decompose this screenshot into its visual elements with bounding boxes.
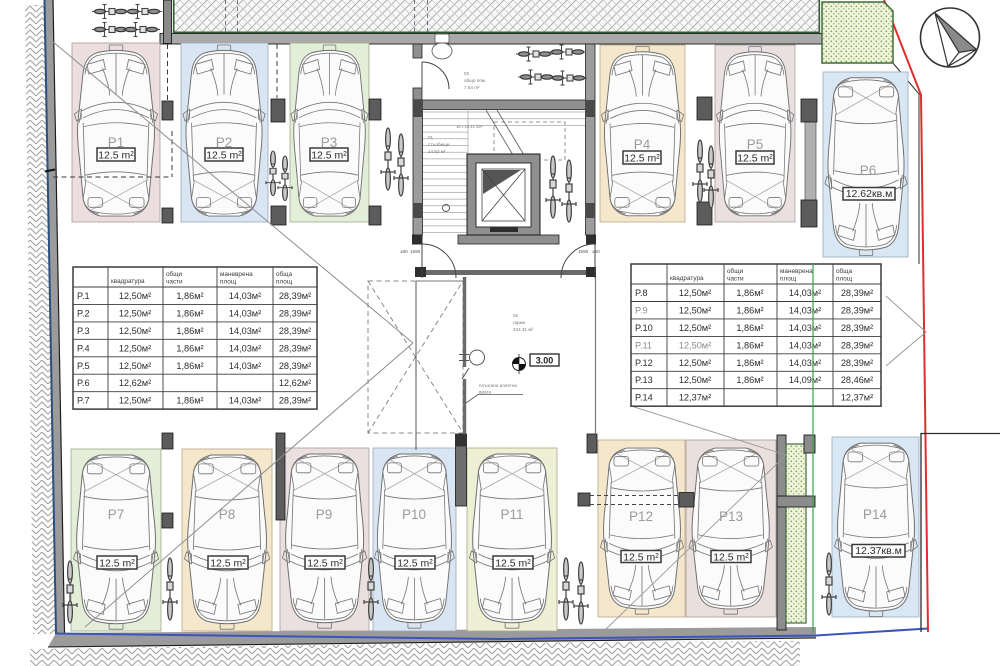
svg-text:12.62кв.м: 12.62кв.м: [846, 188, 893, 200]
svg-text:14,03м²: 14,03м²: [789, 358, 821, 368]
svg-text:1,86м²: 1,86м²: [176, 361, 203, 371]
svg-text:части: части: [727, 276, 744, 283]
svg-text:P.1: P.1: [77, 291, 90, 301]
svg-text:P.9: P.9: [635, 305, 648, 315]
svg-text:12.5 m²: 12.5 m²: [737, 153, 773, 165]
svg-text:P.5: P.5: [77, 361, 90, 371]
svg-text:14,09м²: 14,09м²: [789, 375, 821, 385]
svg-text:площ: площ: [276, 279, 293, 286]
svg-text:01: 01: [428, 135, 434, 140]
svg-text:P.3: P.3: [77, 326, 90, 336]
svg-text:28,39м²: 28,39м²: [279, 308, 311, 318]
svg-text:P6: P6: [860, 163, 877, 178]
svg-text:12.37кв.м: 12.37кв.м: [855, 545, 902, 557]
svg-text:12.5 m²: 12.5 m²: [206, 150, 242, 162]
svg-text:12.5 m²: 12.5 m²: [210, 558, 246, 570]
svg-text:14,03м²: 14,03м²: [789, 323, 821, 333]
svg-text:12.5 m²: 12.5 m²: [98, 150, 134, 162]
svg-text:маневрена: маневрена: [220, 271, 253, 278]
svg-text:маневрена: маневрена: [780, 268, 813, 275]
svg-text:1590: 1590: [578, 249, 589, 254]
svg-text:P.2: P.2: [77, 308, 90, 318]
svg-text:12,50м²: 12,50м²: [679, 358, 711, 368]
svg-text:P.11: P.11: [635, 340, 652, 350]
svg-text:28,39м²: 28,39м²: [279, 361, 311, 371]
svg-text:обща: обща: [276, 270, 292, 278]
svg-text:P7: P7: [108, 507, 125, 522]
svg-text:12,50м²: 12,50м²: [119, 326, 151, 336]
svg-text:стълбище: стълбище: [428, 142, 450, 147]
svg-text:12.5 m²: 12.5 m²: [623, 552, 659, 564]
svg-text:общи: общи: [727, 267, 743, 275]
svg-text:части: части: [166, 279, 183, 286]
svg-text:1,86м²: 1,86м²: [176, 291, 203, 301]
svg-text:P.6: P.6: [77, 378, 90, 388]
svg-text:28,39м²: 28,39м²: [841, 305, 873, 315]
svg-text:1,86м²: 1,86м²: [176, 308, 203, 318]
svg-text:14,03м²: 14,03м²: [229, 308, 261, 318]
svg-text:12,50м²: 12,50м²: [679, 305, 711, 315]
svg-text:14,03м²: 14,03м²: [229, 396, 261, 406]
svg-text:14.52 м²: 14.52 м²: [428, 149, 446, 154]
svg-text:28,39м²: 28,39м²: [279, 326, 311, 336]
svg-text:28,39м²: 28,39м²: [279, 291, 311, 301]
svg-text:P11: P11: [500, 507, 523, 522]
svg-text:12.5 m²: 12.5 m²: [624, 153, 660, 165]
svg-text:гараж: гараж: [513, 320, 526, 325]
svg-text:14,03м²: 14,03м²: [229, 361, 261, 371]
svg-text:28,39м²: 28,39м²: [841, 288, 873, 298]
svg-text:28,39м²: 28,39м²: [279, 396, 311, 406]
svg-text:±90: ±90: [400, 249, 408, 254]
svg-text:общи: общи: [166, 270, 182, 278]
svg-text:14,03м²: 14,03м²: [229, 291, 261, 301]
svg-text:28,39м²: 28,39м²: [841, 340, 873, 350]
svg-text:12.5 m²: 12.5 m²: [311, 150, 347, 162]
svg-text:P.7: P.7: [77, 396, 90, 406]
svg-text:12,50м²: 12,50м²: [679, 375, 711, 385]
svg-text:12,37м²: 12,37м²: [841, 393, 873, 403]
svg-text:12.5 m²: 12.5 m²: [495, 558, 531, 570]
svg-text:14,03м²: 14,03м²: [789, 288, 821, 298]
svg-text:1590: 1590: [410, 249, 421, 254]
svg-text:12,50м²: 12,50м²: [119, 343, 151, 353]
svg-text:P.8: P.8: [635, 288, 648, 298]
svg-text:28,46м²: 28,46м²: [841, 375, 873, 385]
svg-text:14,03м²: 14,03м²: [789, 340, 821, 350]
svg-text:P4: P4: [634, 137, 651, 152]
svg-text:1,86м²: 1,86м²: [736, 340, 763, 350]
svg-text:12,50м²: 12,50м²: [679, 340, 711, 350]
svg-text:P9: P9: [316, 507, 333, 522]
svg-text:1,86м²: 1,86м²: [736, 375, 763, 385]
svg-text:12.5 m²: 12.5 m²: [713, 552, 749, 564]
svg-text:P12: P12: [629, 509, 653, 524]
svg-text:12,50м²: 12,50м²: [679, 288, 711, 298]
svg-text:12,50м²: 12,50м²: [119, 291, 151, 301]
svg-text:P5: P5: [747, 137, 764, 152]
svg-text:14,03м²: 14,03м²: [229, 326, 261, 336]
svg-text:квадратура: квадратура: [111, 278, 145, 285]
svg-text:12.5 m²: 12.5 m²: [307, 558, 343, 570]
svg-text:обща: обща: [836, 267, 852, 275]
svg-text:P.10: P.10: [635, 323, 653, 333]
svg-text:P.12: P.12: [635, 358, 653, 368]
svg-text:1,86м²: 1,86м²: [176, 343, 203, 353]
svg-text:P.13: P.13: [635, 375, 653, 385]
svg-text:1,86м²: 1,86м²: [736, 358, 763, 368]
svg-text:врата: врата: [479, 390, 492, 395]
svg-text:12.5 m²: 12.5 m²: [397, 558, 433, 570]
svg-text:1,86м²: 1,86м²: [176, 326, 203, 336]
svg-text:P14: P14: [863, 507, 888, 522]
svg-text:P10: P10: [402, 507, 426, 522]
svg-text:3.00: 3.00: [536, 356, 554, 366]
svg-text:12,50м²: 12,50м²: [119, 396, 151, 406]
svg-text:02: 02: [464, 71, 470, 76]
svg-text:28,39м²: 28,39м²: [841, 323, 873, 333]
svg-text:18 x 16.44 32P: 18 x 16.44 32P: [456, 124, 483, 129]
svg-text:344.31 м²: 344.31 м²: [513, 327, 533, 332]
svg-text:1,86м²: 1,86м²: [736, 288, 763, 298]
svg-text:14,03м²: 14,03м²: [229, 343, 261, 353]
svg-text:плъзгана ролетна: плъзгана ролетна: [479, 383, 517, 388]
svg-text:площ: площ: [836, 276, 853, 283]
svg-text:28,39м²: 28,39м²: [279, 343, 311, 353]
svg-text:площ: площ: [780, 276, 797, 283]
svg-text:1,86м²: 1,86м²: [176, 396, 203, 406]
svg-text:02: 02: [513, 313, 519, 318]
svg-text:12,50м²: 12,50м²: [679, 323, 711, 333]
svg-text:7.64 m²: 7.64 m²: [464, 85, 480, 90]
svg-text:±90: ±90: [592, 249, 600, 254]
svg-text:1,86м²: 1,86м²: [736, 323, 763, 333]
svg-text:14,03м²: 14,03м²: [789, 305, 821, 315]
svg-text:12,62м²: 12,62м²: [119, 378, 151, 388]
svg-text:12,62м²: 12,62м²: [279, 378, 311, 388]
svg-text:12.5 m²: 12.5 m²: [99, 558, 135, 570]
svg-text:P.4: P.4: [77, 343, 90, 353]
svg-text:P.14: P.14: [635, 393, 653, 403]
svg-text:28,39м²: 28,39м²: [841, 358, 873, 368]
svg-text:общо пом.: общо пом.: [464, 78, 486, 83]
svg-text:квадратура: квадратура: [670, 275, 704, 282]
svg-text:1,86м²: 1,86м²: [736, 305, 763, 315]
svg-text:площ: площ: [220, 279, 237, 286]
svg-text:12,50м²: 12,50м²: [119, 308, 151, 318]
svg-text:12,37м²: 12,37м²: [679, 393, 711, 403]
svg-text:12,50м²: 12,50м²: [119, 361, 151, 371]
